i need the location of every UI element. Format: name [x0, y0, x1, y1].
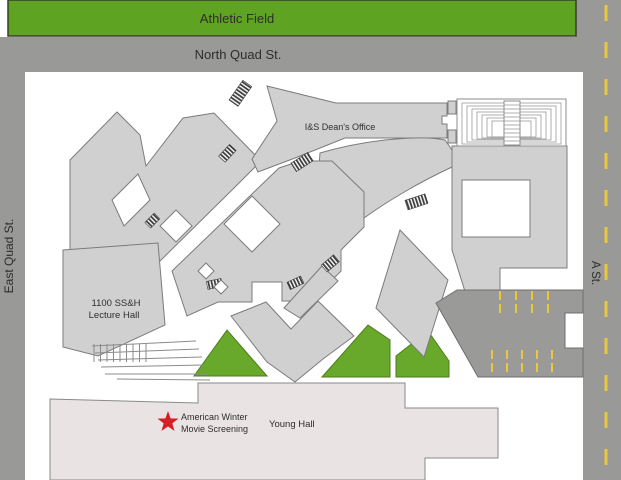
lecture-hall-label-line1: 1100 SS&H — [92, 298, 141, 309]
athletic-field-label: Athletic Field — [200, 11, 274, 26]
young-hall-building — [50, 383, 498, 480]
campus-map-page: Athletic Field North Quad St. East Quad … — [0, 0, 621, 480]
young-hall-label: Young Hall — [269, 419, 315, 430]
north-quad-street-label: North Quad St. — [195, 47, 282, 62]
east-quad-street-label: East Quad St. — [2, 219, 16, 294]
north-quad-street-road — [0, 37, 621, 72]
lecture-hall-label-line2: Lecture Hall — [89, 310, 140, 321]
deans-office-label: I&S Dean's Office — [305, 122, 376, 132]
auditorium — [448, 99, 566, 146]
northeast-building — [452, 146, 567, 301]
event-label-line1: American Winter — [181, 412, 248, 422]
campus-map: Athletic Field North Quad St. East Quad … — [0, 0, 621, 480]
athletic-field — [8, 0, 576, 36]
a-street-label: A St. — [589, 261, 601, 285]
event-label-line2: Movie Screening — [181, 424, 248, 434]
parking-lot — [436, 290, 583, 377]
